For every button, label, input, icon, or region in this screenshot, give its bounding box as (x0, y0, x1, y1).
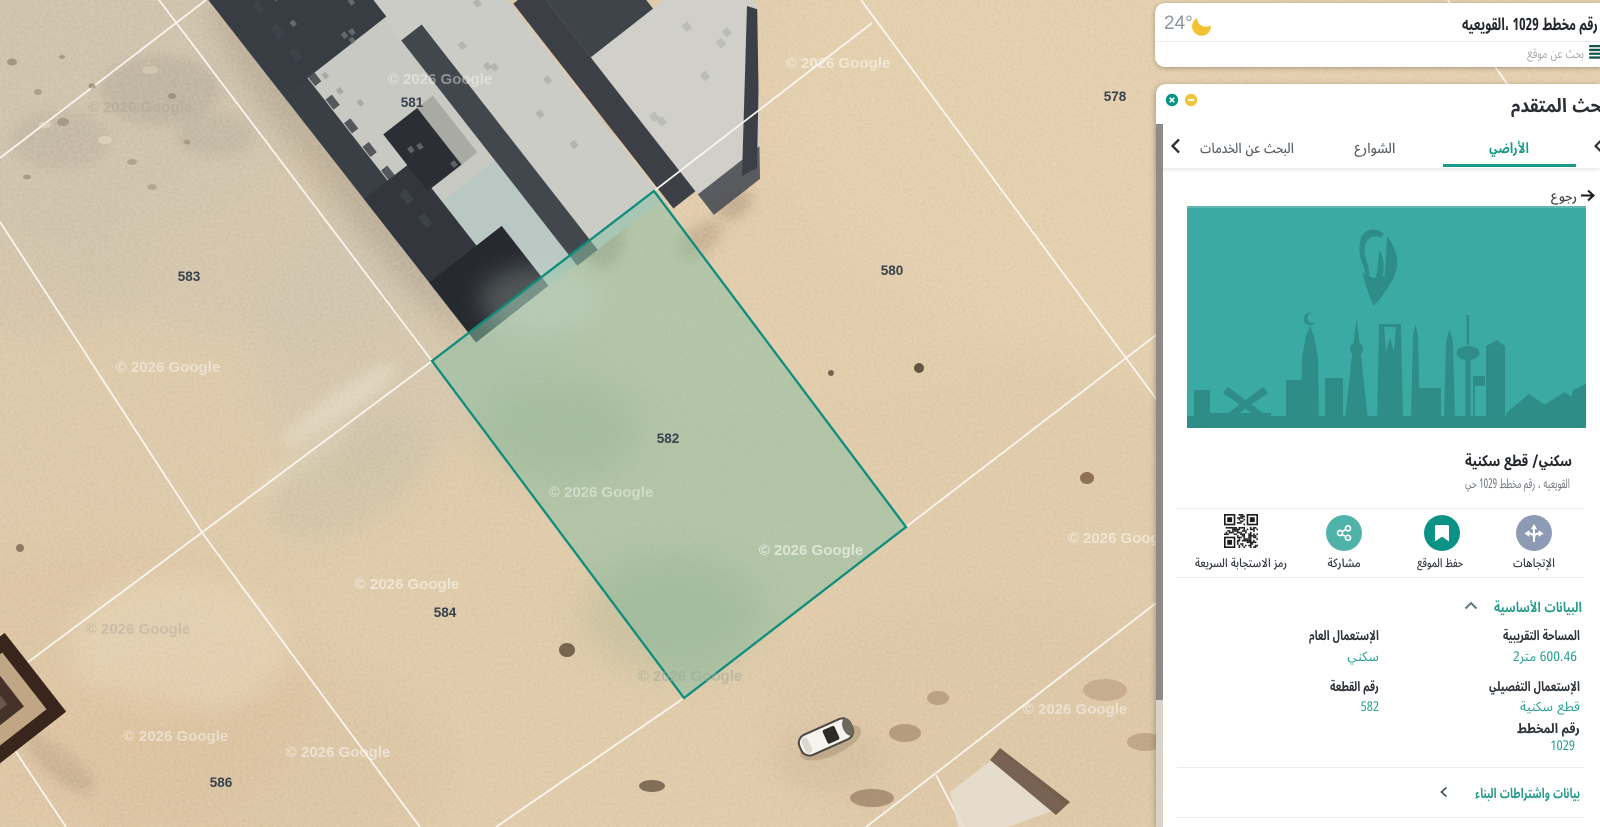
svg-text:580: 580 (881, 263, 904, 278)
svg-text:581: 581 (401, 95, 424, 110)
svg-text:© 2026 Google: © 2026 Google (286, 744, 390, 761)
svg-text:578: 578 (1104, 89, 1127, 104)
svg-text:583: 583 (178, 269, 201, 284)
svg-text:© 2026 Google: © 2026 Google (638, 668, 742, 685)
svg-text:© 2026 Google: © 2026 Google (786, 55, 890, 72)
svg-text:© 2026 Google: © 2026 Google (86, 621, 190, 638)
svg-text:586: 586 (210, 775, 233, 790)
svg-text:582: 582 (657, 431, 680, 446)
svg-text:© 2026 Google: © 2026 Google (549, 484, 653, 501)
svg-text:© 2026 Google: © 2026 Google (124, 728, 228, 745)
svg-text:© 2026 Google: © 2026 Google (1023, 701, 1127, 718)
svg-text:© 2026 Google: © 2026 Google (388, 71, 492, 88)
svg-text:584: 584 (434, 605, 457, 620)
svg-text:© 2026 Google: © 2026 Google (355, 576, 459, 593)
svg-text:© 2026 Google: © 2026 Google (88, 99, 192, 116)
svg-text:© 2026 Google: © 2026 Google (116, 359, 220, 376)
svg-text:© 2026 Google: © 2026 Google (759, 542, 863, 559)
